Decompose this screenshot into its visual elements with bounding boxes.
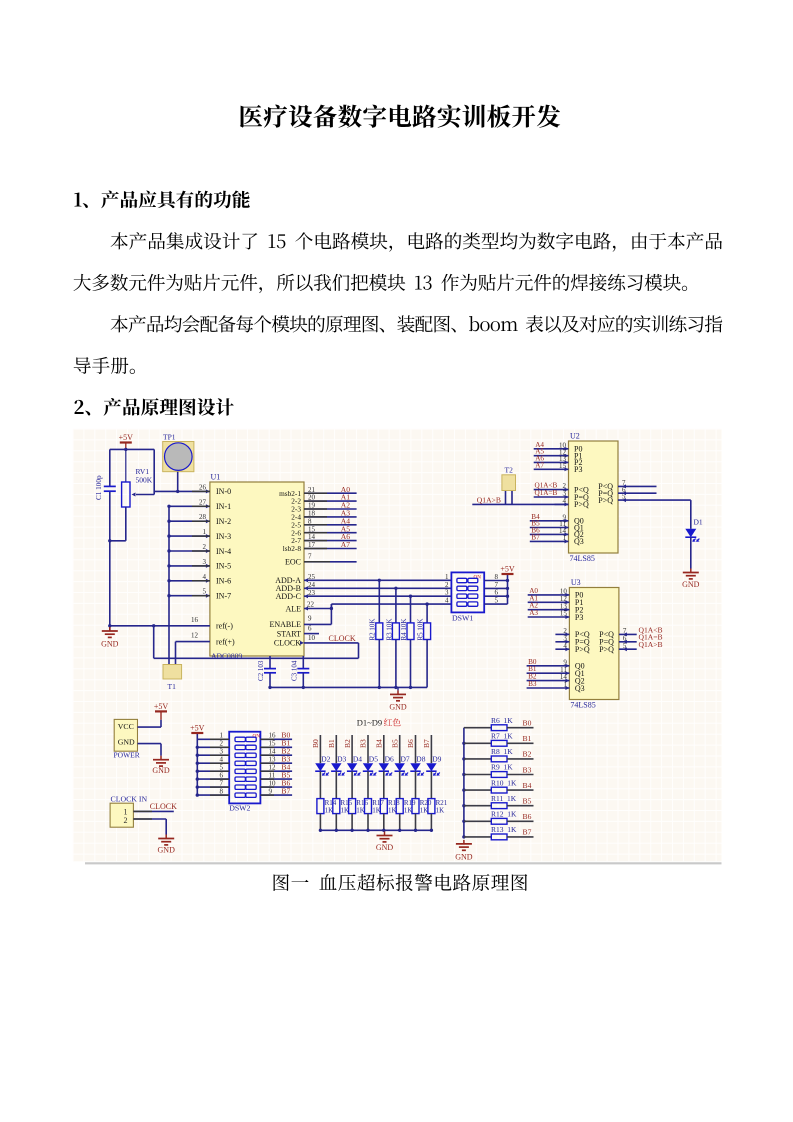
svg-text:B3: B3 <box>359 739 368 748</box>
svg-text:D1: D1 <box>694 518 703 527</box>
svg-text:9: 9 <box>269 788 273 796</box>
svg-text:ENABLE: ENABLE <box>269 620 301 629</box>
svg-text:10: 10 <box>308 634 316 642</box>
svg-text:B3: B3 <box>523 765 532 774</box>
svg-text:B6: B6 <box>406 739 415 748</box>
svg-text:+5V: +5V <box>190 723 205 732</box>
svg-text:GND: GND <box>682 580 700 589</box>
svg-text:28: 28 <box>199 513 207 521</box>
svg-text:D1~D9: D1~D9 <box>357 718 385 728</box>
svg-text:R7 1K: R7 1K <box>491 732 513 741</box>
svg-text:GND: GND <box>158 846 176 855</box>
svg-text:B6: B6 <box>523 812 532 821</box>
svg-text:10: 10 <box>269 780 277 788</box>
svg-text:GND: GND <box>152 766 170 775</box>
svg-text:16: 16 <box>269 732 277 740</box>
svg-text:6: 6 <box>308 625 312 633</box>
svg-text:D2: D2 <box>321 755 330 764</box>
svg-text:VCC: VCC <box>118 722 134 731</box>
svg-text:P3: P3 <box>574 465 582 474</box>
svg-text:ADD-C: ADD-C <box>276 592 301 601</box>
svg-text:1K: 1K <box>436 806 445 814</box>
svg-text:GND: GND <box>101 640 119 649</box>
svg-text:2: 2 <box>445 581 449 589</box>
svg-text:A3: A3 <box>529 609 538 617</box>
svg-text:IN-2: IN-2 <box>216 517 231 526</box>
svg-text:3: 3 <box>445 589 449 597</box>
svg-text:2: 2 <box>124 816 128 825</box>
svg-text:IN-0: IN-0 <box>216 487 231 496</box>
svg-text:B7: B7 <box>523 828 532 837</box>
svg-text:B7: B7 <box>531 533 540 541</box>
svg-text:12: 12 <box>269 764 277 772</box>
svg-text:T2: T2 <box>505 466 514 475</box>
svg-text:IN-7: IN-7 <box>216 592 231 601</box>
svg-text:TP1: TP1 <box>163 433 176 442</box>
svg-text:27: 27 <box>199 498 207 506</box>
svg-text:R11 1K: R11 1K <box>491 794 517 803</box>
svg-text:26: 26 <box>199 483 207 491</box>
svg-text:POWER: POWER <box>114 751 140 760</box>
svg-text:R10 1K: R10 1K <box>491 778 517 787</box>
svg-text:DSW1: DSW1 <box>452 613 473 622</box>
svg-text:5: 5 <box>220 764 224 772</box>
svg-text:R8 1K: R8 1K <box>491 747 513 756</box>
svg-text:D4: D4 <box>353 755 362 764</box>
svg-text:Q1A>B: Q1A>B <box>639 640 663 649</box>
svg-text:R12 1K: R12 1K <box>491 810 517 819</box>
svg-text:U2: U2 <box>570 432 580 441</box>
svg-text:R9 1K: R9 1K <box>491 763 513 772</box>
svg-text:B2: B2 <box>523 750 532 759</box>
svg-text:B4: B4 <box>523 781 532 790</box>
svg-text:B3: B3 <box>528 680 537 688</box>
svg-text:4: 4 <box>220 756 224 764</box>
svg-text:CLOCK IN: CLOCK IN <box>111 794 148 803</box>
svg-text:lsb2-8: lsb2-8 <box>283 544 302 553</box>
svg-text:B0: B0 <box>311 739 320 748</box>
svg-text:CLOCK: CLOCK <box>274 639 301 648</box>
svg-text:R4 10K: R4 10K <box>400 619 408 641</box>
svg-text:B5: B5 <box>523 797 532 806</box>
svg-text:B0: B0 <box>523 719 532 728</box>
svg-text:CLOCK: CLOCK <box>150 802 177 811</box>
svg-text:12: 12 <box>191 632 199 640</box>
svg-text:C3 104: C3 104 <box>290 660 298 681</box>
svg-text:B2: B2 <box>343 739 352 748</box>
svg-text:C2 103: C2 103 <box>257 660 265 681</box>
svg-text:1K: 1K <box>356 806 365 814</box>
svg-text:Q1A=B: Q1A=B <box>535 489 558 497</box>
svg-text:A7: A7 <box>535 461 544 469</box>
svg-text:R2 10K: R2 10K <box>369 619 377 641</box>
svg-text:Q3: Q3 <box>575 684 585 693</box>
svg-text:22: 22 <box>307 600 315 608</box>
svg-text:CLOCK: CLOCK <box>329 634 356 643</box>
svg-text:11: 11 <box>269 772 276 780</box>
svg-text:B7: B7 <box>281 787 290 796</box>
svg-text:+5V: +5V <box>500 564 515 573</box>
svg-text:B5: B5 <box>390 739 399 748</box>
svg-text:74LS85: 74LS85 <box>570 701 595 710</box>
svg-text:B1: B1 <box>523 734 532 743</box>
svg-text:1K: 1K <box>341 806 350 814</box>
svg-text:+5V: +5V <box>119 433 134 442</box>
svg-text:500K: 500K <box>136 476 153 485</box>
svg-text:74LS85: 74LS85 <box>570 554 595 563</box>
svg-text:D7: D7 <box>401 755 410 764</box>
svg-text:1K: 1K <box>404 806 413 814</box>
svg-text:C1 100p: C1 100p <box>95 475 103 500</box>
svg-text:D9: D9 <box>432 755 441 764</box>
svg-text:GND: GND <box>376 843 394 852</box>
svg-text:1K: 1K <box>372 806 381 814</box>
svg-text:EOC: EOC <box>285 557 301 566</box>
svg-text:B4: B4 <box>375 739 384 748</box>
svg-text:IN-3: IN-3 <box>216 532 231 541</box>
svg-text:GND: GND <box>389 703 407 712</box>
svg-text:16: 16 <box>191 616 199 624</box>
svg-text:3: 3 <box>220 748 224 756</box>
svg-text:R13 1K: R13 1K <box>491 825 517 834</box>
svg-text:IN-4: IN-4 <box>216 547 231 556</box>
svg-text:B7: B7 <box>422 739 431 748</box>
svg-text:P>Q: P>Q <box>574 500 589 509</box>
svg-text:7: 7 <box>495 581 499 589</box>
svg-text:15: 15 <box>269 740 277 748</box>
svg-text:4: 4 <box>445 597 449 605</box>
svg-text:14: 14 <box>269 748 277 756</box>
svg-text:START: START <box>277 629 301 638</box>
svg-text:R3 10K: R3 10K <box>385 619 393 641</box>
svg-text:Q1A>B: Q1A>B <box>477 495 501 504</box>
svg-text:R5 10K: R5 10K <box>417 619 425 641</box>
svg-text:T1: T1 <box>168 682 177 691</box>
svg-text:R6 1K: R6 1K <box>491 716 513 725</box>
svg-text:P>Q: P>Q <box>575 645 590 654</box>
svg-text:GND: GND <box>118 737 135 746</box>
svg-text:1K: 1K <box>325 806 334 814</box>
svg-text:D3: D3 <box>337 755 346 764</box>
svg-text:1K: 1K <box>420 806 429 814</box>
svg-text:IN-5: IN-5 <box>216 562 231 571</box>
svg-text:DSW2: DSW2 <box>229 804 250 813</box>
svg-text:P>Q: P>Q <box>598 496 613 505</box>
svg-text:13: 13 <box>269 756 277 764</box>
svg-text:7: 7 <box>308 553 312 561</box>
svg-text:P3: P3 <box>575 613 583 622</box>
svg-text:9: 9 <box>308 614 312 622</box>
svg-text:ref(-): ref(-) <box>216 622 233 631</box>
svg-text:D6: D6 <box>385 755 394 764</box>
svg-text:ref(+): ref(+) <box>216 637 235 646</box>
svg-text:6: 6 <box>495 589 499 597</box>
svg-text:1K: 1K <box>388 806 397 814</box>
svg-text:D8: D8 <box>416 755 425 764</box>
svg-text:U1: U1 <box>211 473 221 482</box>
svg-text:IN-6: IN-6 <box>216 577 231 586</box>
svg-text:A7: A7 <box>341 540 350 549</box>
svg-text:D5: D5 <box>369 755 378 764</box>
svg-text:GND: GND <box>455 853 473 862</box>
svg-text:ALE: ALE <box>285 604 301 613</box>
svg-text:+5V: +5V <box>154 702 169 711</box>
svg-text:B1: B1 <box>327 739 336 748</box>
svg-text:U3: U3 <box>571 578 581 587</box>
svg-text:Q3: Q3 <box>574 537 584 546</box>
svg-text:P>Q: P>Q <box>599 645 614 654</box>
svg-text:1: 1 <box>445 573 449 581</box>
svg-text:IN-1: IN-1 <box>216 502 231 511</box>
